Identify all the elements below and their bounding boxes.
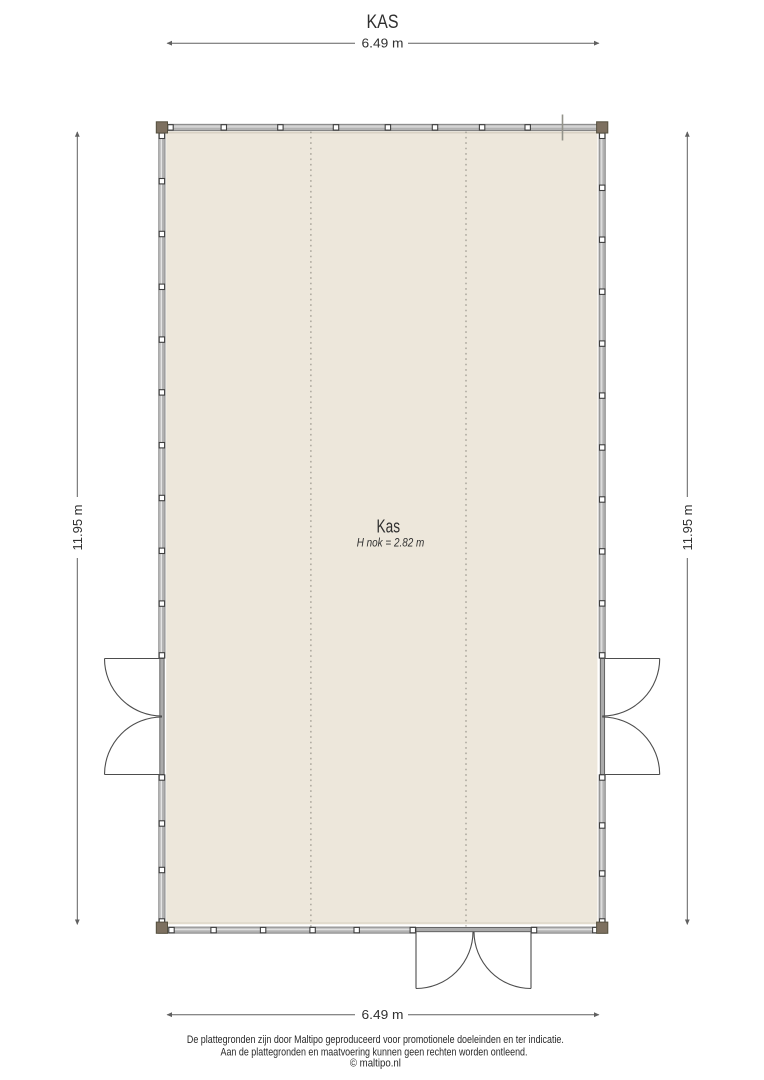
svg-text:6.49 m: 6.49 m [362, 1007, 404, 1022]
svg-text:11.95 m: 11.95 m [70, 505, 85, 551]
svg-text:© maltipo.nl: © maltipo.nl [350, 1058, 401, 1070]
svg-text:Kas: Kas [377, 516, 401, 537]
svg-text:De plattegronden zijn door Mal: De plattegronden zijn door Maltipo gepro… [187, 1034, 564, 1046]
svg-text:11.95 m: 11.95 m [680, 505, 695, 551]
svg-text:KAS: KAS [367, 11, 399, 33]
svg-text:H nok = 2.82 m: H nok = 2.82 m [357, 536, 425, 549]
svg-text:6.49 m: 6.49 m [362, 36, 404, 51]
